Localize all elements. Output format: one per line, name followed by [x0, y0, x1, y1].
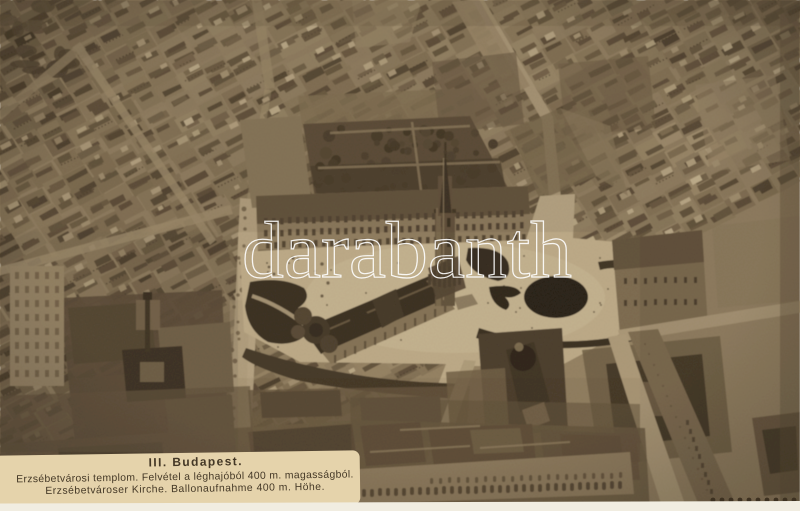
svg-text:darabanth: darabanth: [242, 207, 572, 295]
svg-text:III. Budapest.: III. Budapest.: [148, 454, 242, 469]
